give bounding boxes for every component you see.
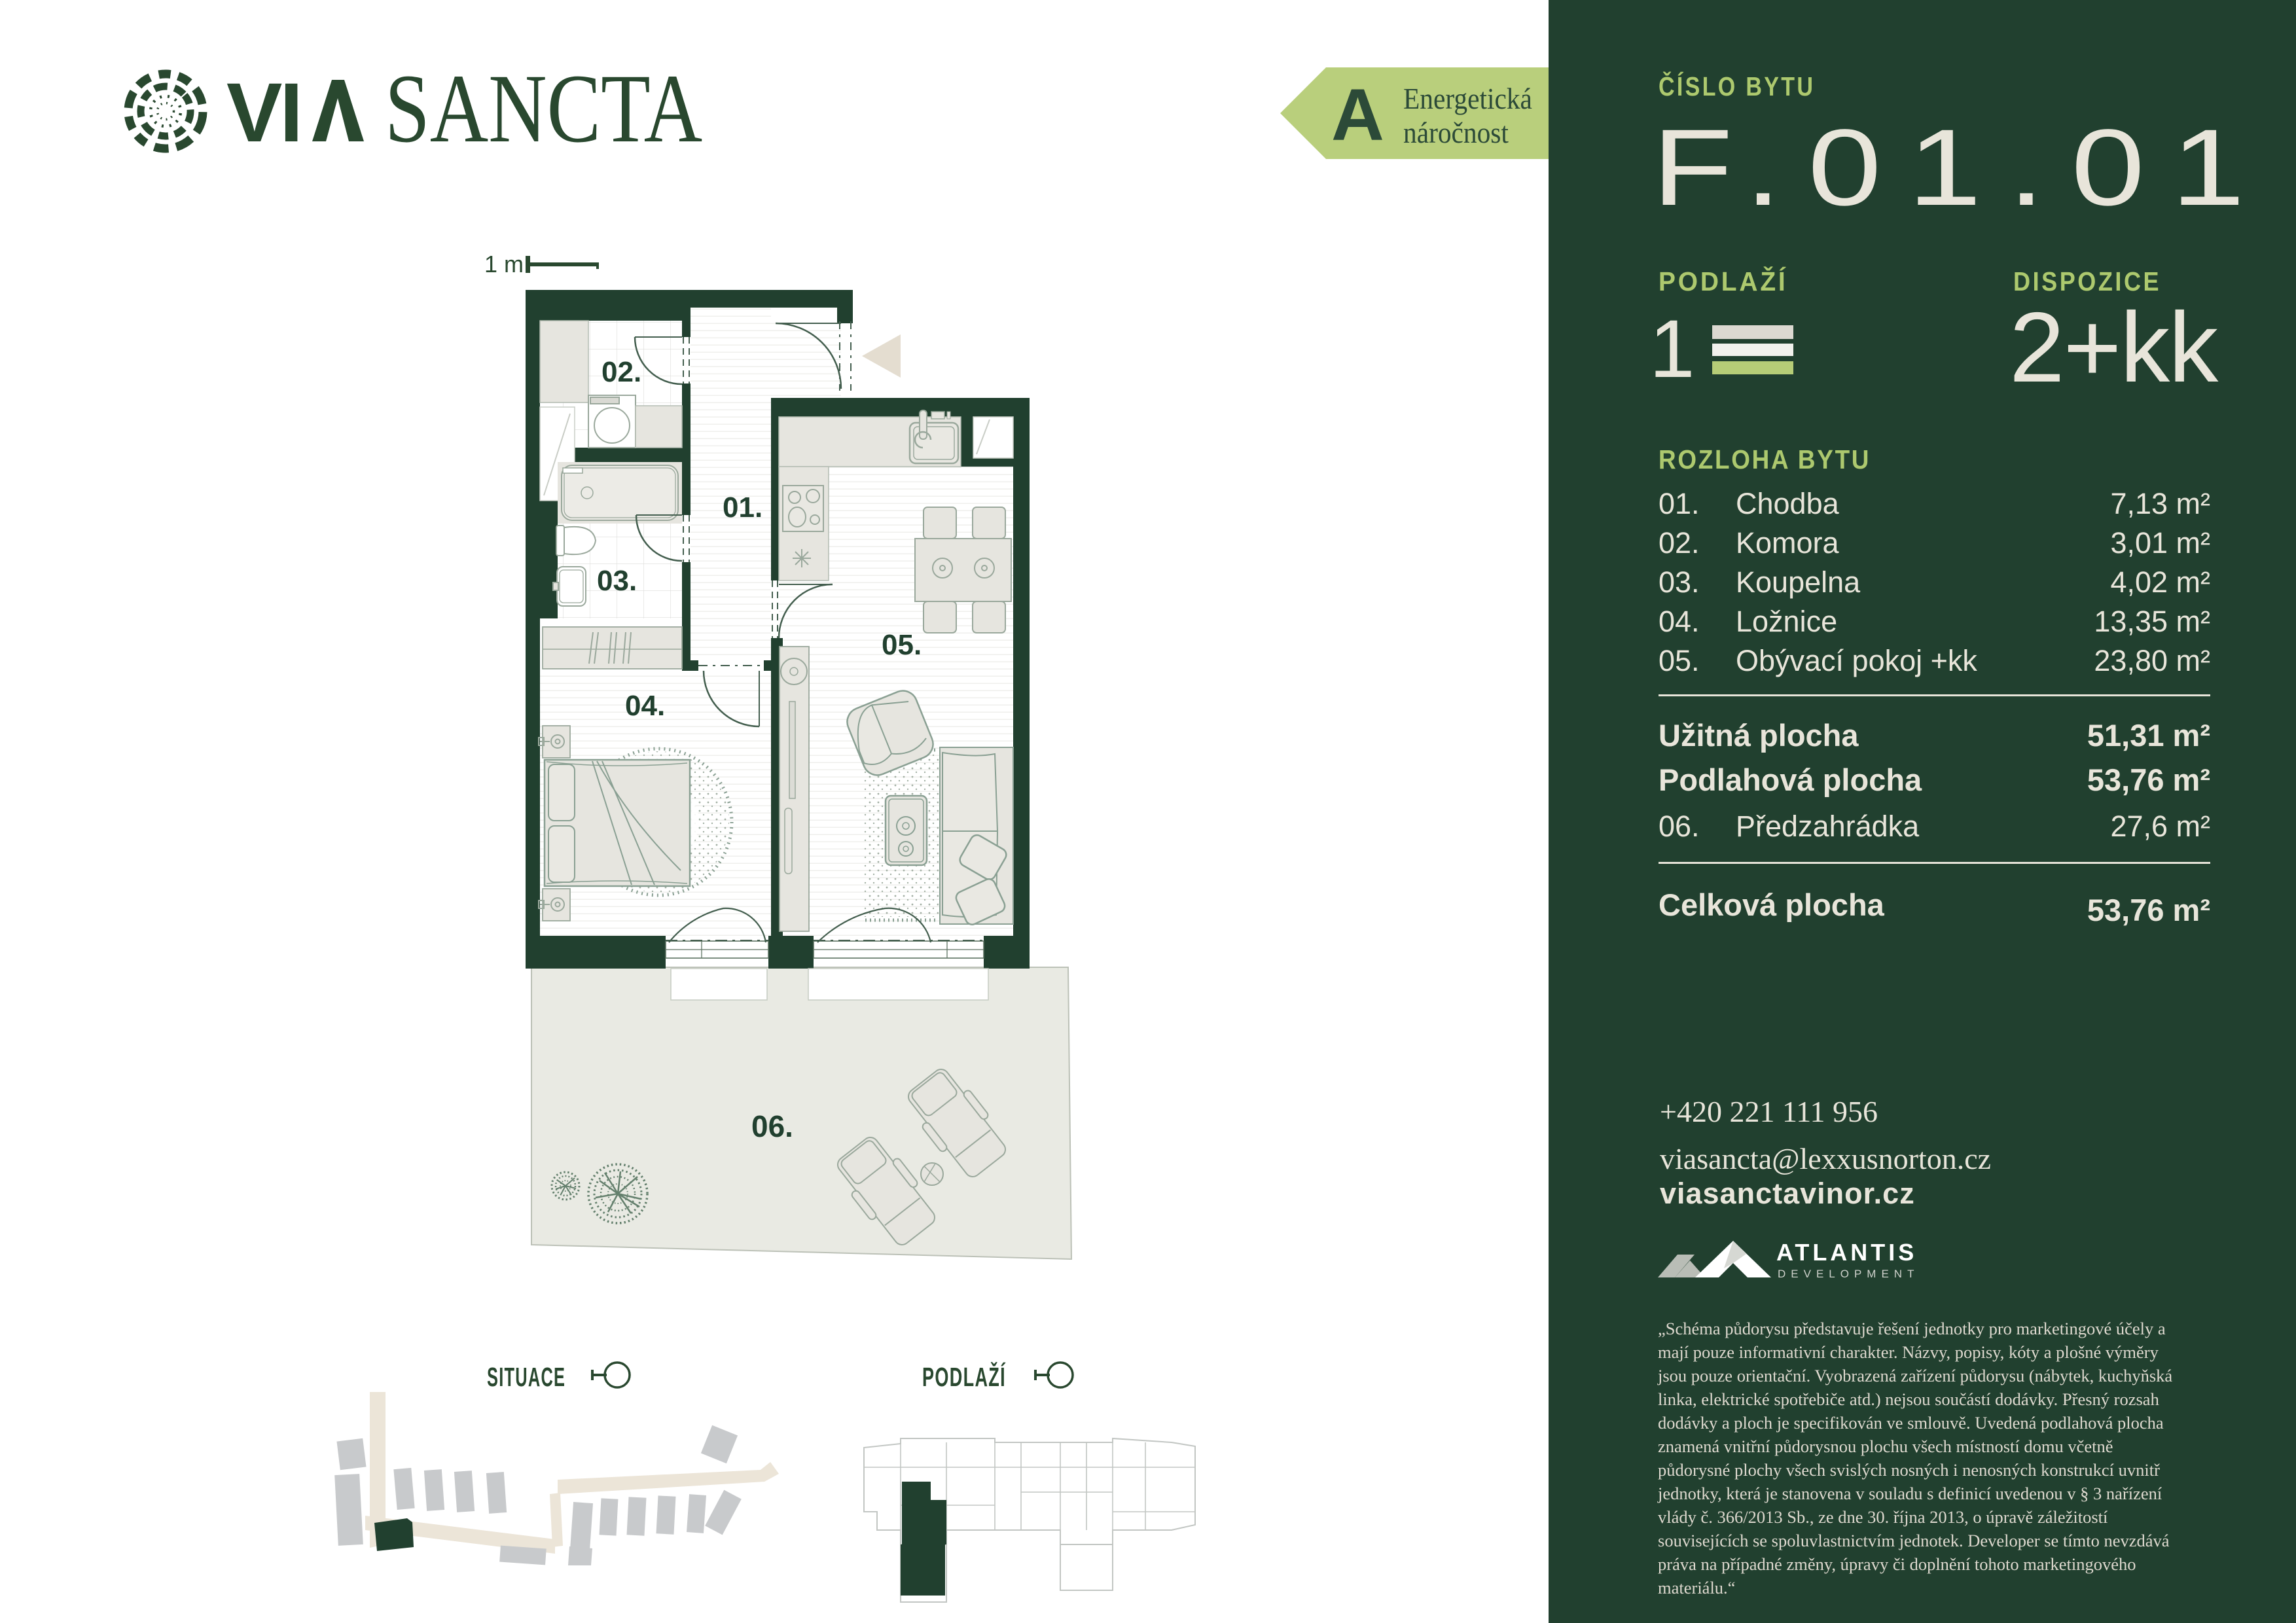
svg-text:VI: VI: [226, 66, 300, 160]
svg-text:1 m: 1 m: [484, 251, 524, 277]
svg-text:A: A: [1331, 74, 1384, 156]
svg-text:náročnost: náročnost: [1403, 116, 1509, 149]
svg-text:DEVELOPMENT: DEVELOPMENT: [1778, 1268, 1919, 1280]
svg-text:ATLANTIS: ATLANTIS: [1776, 1239, 1917, 1266]
svg-text:04.: 04.: [625, 690, 665, 722]
svg-text:05.: 05.: [882, 629, 922, 661]
svg-text:06.: 06.: [751, 1109, 793, 1143]
svg-text:Energetická: Energetická: [1403, 82, 1532, 115]
svg-text:SANCTA: SANCTA: [385, 59, 702, 163]
svg-text:02.: 02.: [601, 356, 641, 388]
svg-text:01.: 01.: [723, 491, 762, 524]
svg-text:03.: 03.: [597, 565, 637, 597]
